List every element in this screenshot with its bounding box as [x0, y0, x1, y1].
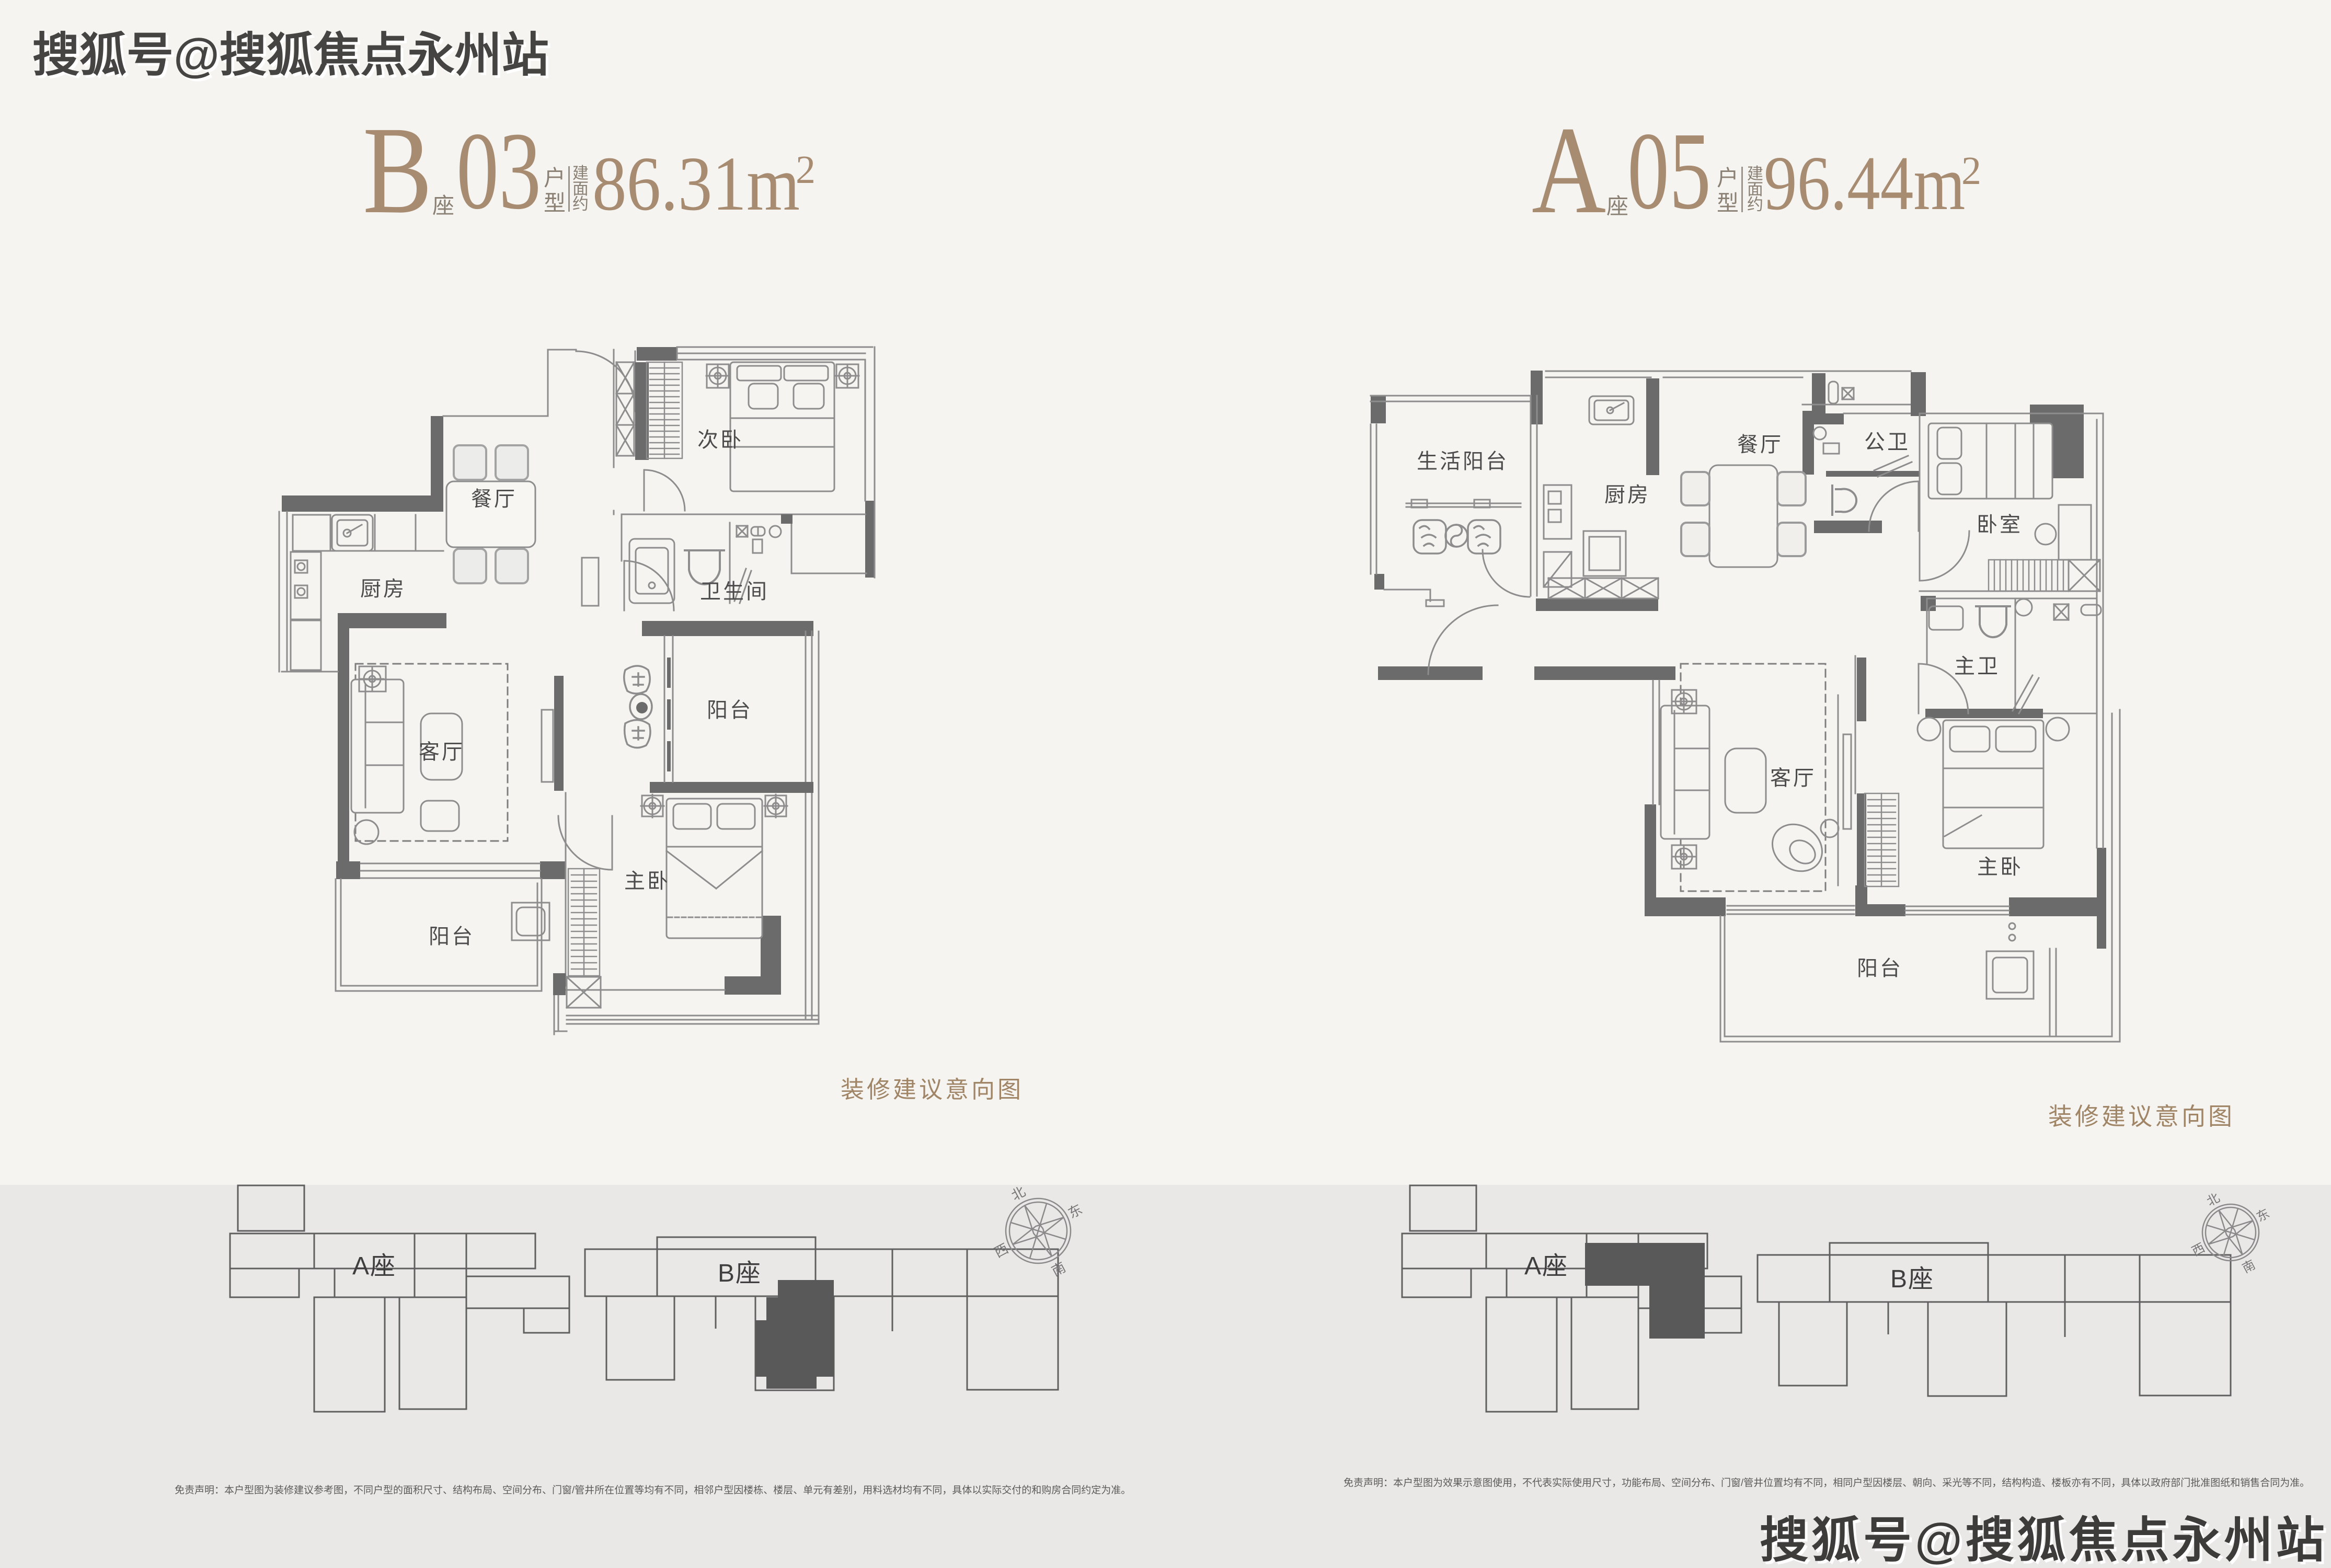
svg-text:餐厅: 餐厅: [471, 488, 517, 511]
svg-text:阳台: 阳台: [707, 699, 753, 722]
svg-text:阳台: 阳台: [1857, 957, 1903, 980]
svg-text:生活阳台: 生活阳台: [1417, 450, 1509, 473]
svg-text:B座: B座: [1890, 1265, 1934, 1293]
svg-text:主卧: 主卧: [1977, 856, 2023, 879]
svg-text:B座: B座: [718, 1260, 762, 1287]
svg-text:客厅: 客厅: [419, 741, 465, 764]
svg-text:公卫: 公卫: [1864, 431, 1910, 454]
svg-text:阳台: 阳台: [429, 925, 475, 948]
svg-text:卧室: 卧室: [1977, 513, 2023, 536]
svg-text:南: 南: [2240, 1258, 2258, 1276]
svg-text:餐厅: 餐厅: [1737, 433, 1783, 456]
svg-text:次卧: 次卧: [697, 429, 743, 452]
svg-text:客厅: 客厅: [1770, 767, 1816, 790]
svg-text:A座: A座: [1524, 1252, 1568, 1280]
svg-text:南: 南: [1049, 1259, 1068, 1279]
svg-text:卫生间: 卫生间: [700, 580, 769, 603]
svg-text:A座: A座: [352, 1252, 396, 1280]
svg-text:主卫: 主卫: [1954, 655, 2000, 678]
svg-text:厨房: 厨房: [1604, 483, 1650, 506]
svg-text:主卧: 主卧: [624, 870, 670, 893]
svg-text:厨房: 厨房: [360, 578, 406, 601]
